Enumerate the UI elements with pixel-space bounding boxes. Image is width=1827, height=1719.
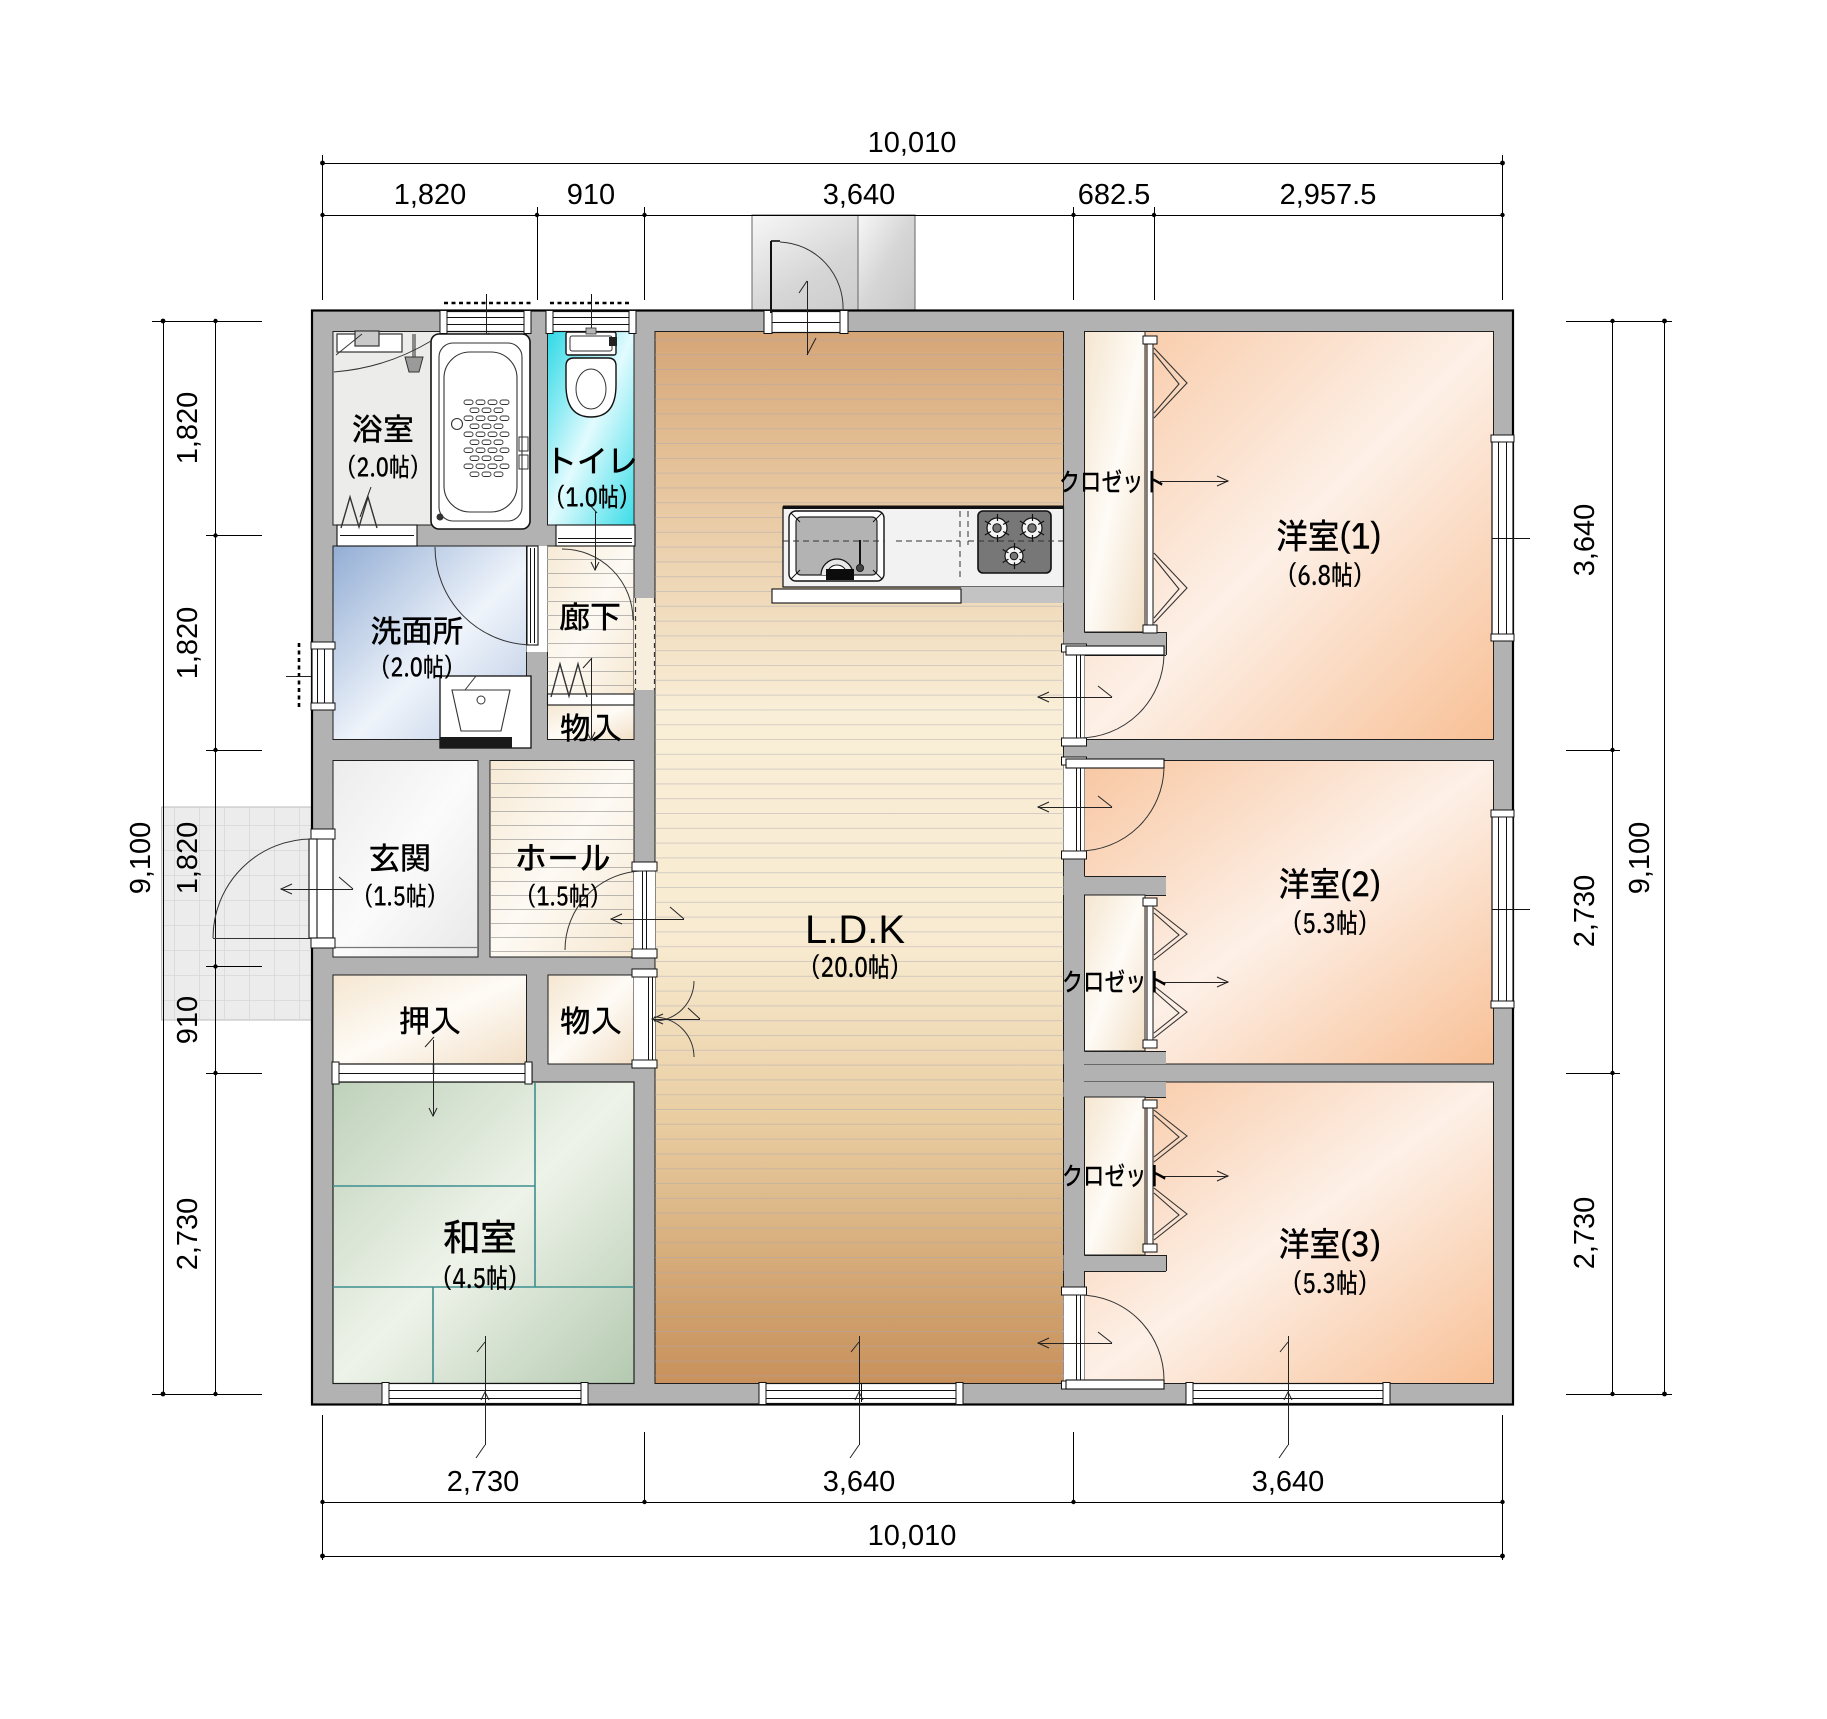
svg-text:L.D.K: L.D.K bbox=[805, 908, 905, 952]
svg-text:1,820: 1,820 bbox=[172, 822, 204, 895]
svg-text:2,957.5: 2,957.5 bbox=[1280, 179, 1377, 211]
svg-text:1,820: 1,820 bbox=[172, 607, 204, 680]
svg-text:2,730: 2,730 bbox=[447, 1466, 520, 1498]
svg-text:9,100: 9,100 bbox=[1624, 822, 1656, 895]
svg-text:682.5: 682.5 bbox=[1078, 179, 1151, 211]
svg-text:1,820: 1,820 bbox=[172, 392, 204, 465]
svg-text:10,010: 10,010 bbox=[868, 1520, 957, 1552]
svg-text:2,730: 2,730 bbox=[1569, 1197, 1601, 1270]
svg-text:2,730: 2,730 bbox=[1569, 875, 1601, 948]
svg-text:3,640: 3,640 bbox=[1252, 1466, 1325, 1498]
svg-text:3,640: 3,640 bbox=[1569, 504, 1601, 577]
svg-text:3,640: 3,640 bbox=[823, 179, 896, 211]
svg-text:10,010: 10,010 bbox=[868, 127, 957, 159]
svg-text:3,640: 3,640 bbox=[823, 1466, 896, 1498]
svg-text:910: 910 bbox=[172, 996, 204, 1044]
svg-text:1,820: 1,820 bbox=[394, 179, 467, 211]
svg-text:2,730: 2,730 bbox=[172, 1198, 204, 1271]
svg-text:9,100: 9,100 bbox=[125, 822, 157, 895]
svg-text:910: 910 bbox=[567, 179, 615, 211]
